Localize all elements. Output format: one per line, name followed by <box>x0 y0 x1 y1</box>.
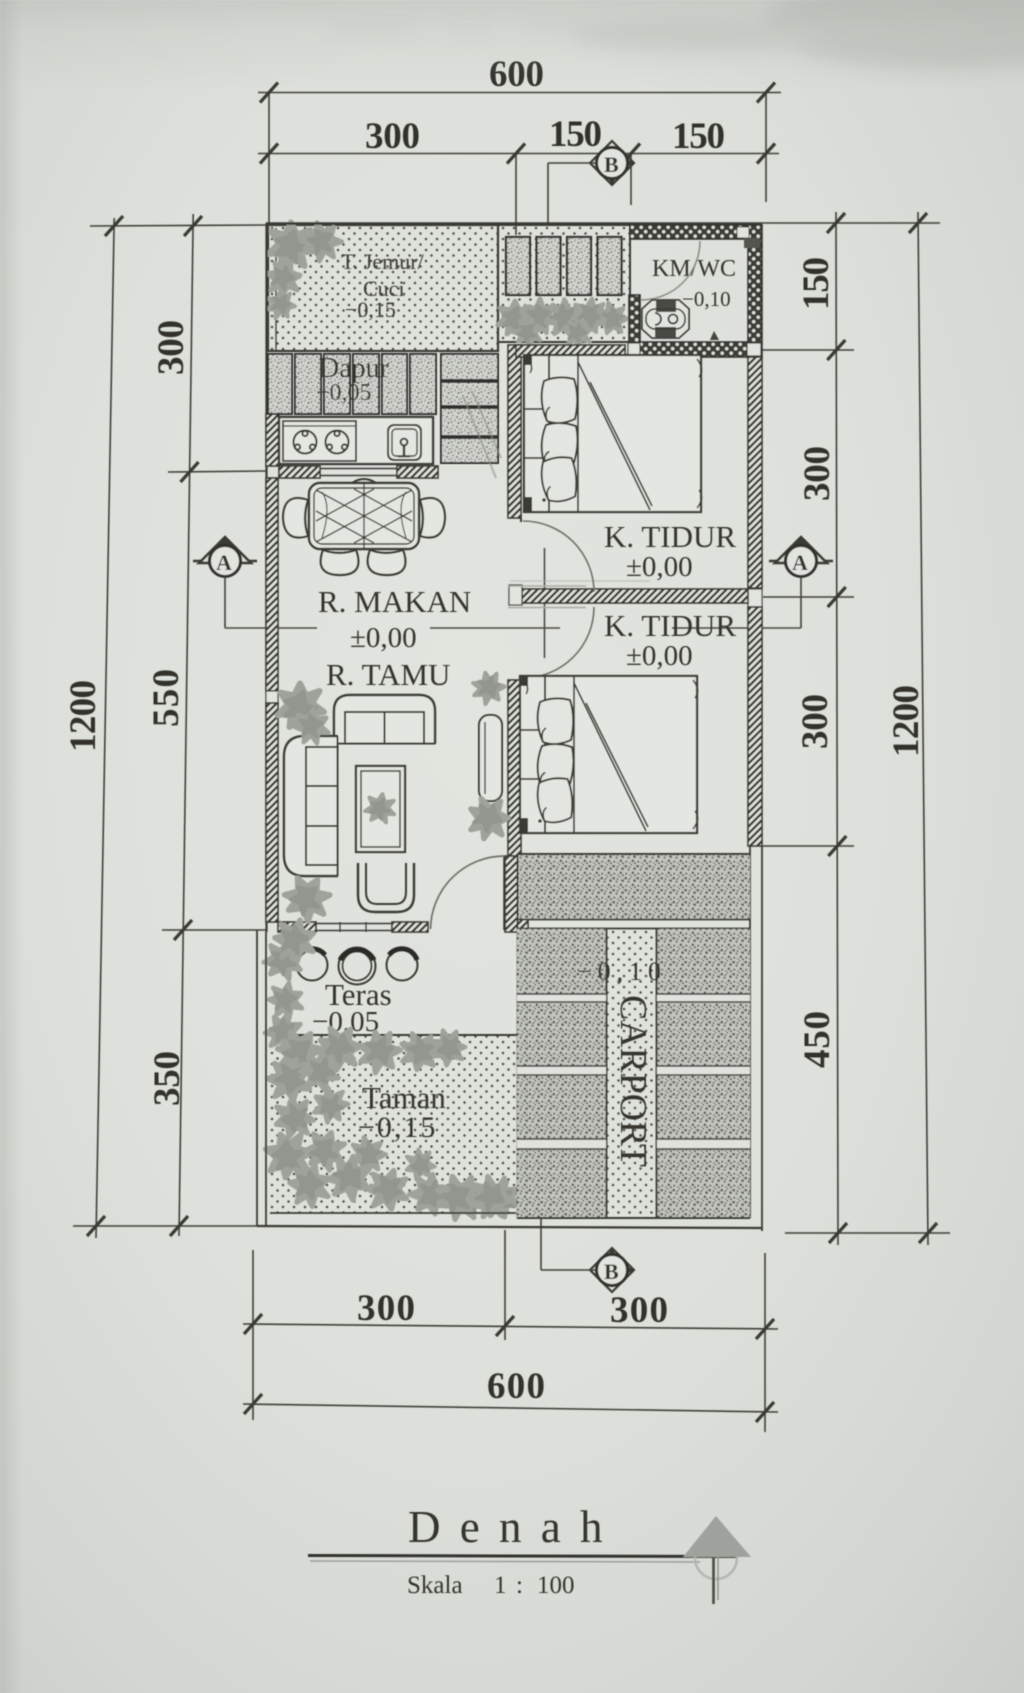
svg-text:±0,00: ±0,00 <box>626 551 693 583</box>
svg-text:±0,00: ±0,00 <box>350 622 417 654</box>
svg-text:±0,00: ±0,00 <box>626 640 693 672</box>
svg-text:550: 550 <box>146 669 187 727</box>
svg-text:300: 300 <box>357 1288 415 1329</box>
svg-text:B: B <box>604 152 619 177</box>
svg-text:KM/WC: KM/WC <box>652 256 736 282</box>
svg-text:300: 300 <box>365 116 420 157</box>
svg-text:300: 300 <box>795 694 836 749</box>
svg-text:−0,15: −0,15 <box>345 297 396 322</box>
svg-text:Taman: Taman <box>362 1080 446 1115</box>
svg-text:600: 600 <box>487 1366 545 1407</box>
svg-text:−0,15: −0,15 <box>358 1111 437 1144</box>
svg-text:1200: 1200 <box>63 680 104 752</box>
svg-text:CARPORT: CARPORT <box>612 995 654 1167</box>
svg-text:A: A <box>216 550 232 575</box>
svg-text:T. Jemur/: T. Jemur/ <box>341 249 425 274</box>
svg-text:A: A <box>792 550 808 575</box>
svg-text:B: B <box>604 1259 619 1284</box>
svg-text:150: 150 <box>549 114 602 155</box>
svg-text:R. TAMU: R. TAMU <box>326 657 450 692</box>
svg-text:−0,05: −0,05 <box>316 380 372 406</box>
svg-text:1200: 1200 <box>886 685 927 757</box>
svg-text:K. TIDUR: K. TIDUR <box>604 519 736 554</box>
svg-text:−0,10: −0,10 <box>577 957 661 986</box>
svg-text:300: 300 <box>610 1290 668 1331</box>
svg-text:450: 450 <box>797 1011 838 1068</box>
svg-text:K. TIDUR: K. TIDUR <box>604 608 736 643</box>
svg-text:−0,10: −0,10 <box>682 287 731 311</box>
svg-text:300: 300 <box>797 446 838 501</box>
svg-text:300: 300 <box>151 320 192 375</box>
svg-text:150: 150 <box>672 116 725 157</box>
svg-text:350: 350 <box>147 1051 188 1106</box>
svg-text:150: 150 <box>796 257 837 310</box>
svg-text:R. MAKAN: R. MAKAN <box>318 584 471 619</box>
svg-text:D e n a h: D e n a h <box>408 1502 606 1552</box>
